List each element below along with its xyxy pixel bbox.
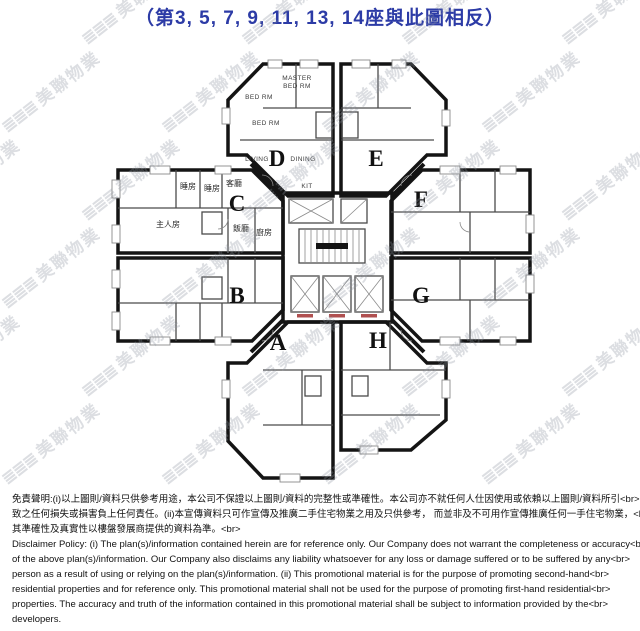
room-label: 客廳 bbox=[226, 178, 242, 188]
disclaimer-line: 其準確性及真實性以樓盤發展商提供的資料為準。<br> bbox=[12, 522, 632, 537]
room-label: 主人房 bbox=[156, 219, 180, 229]
unit-label-D: D bbox=[269, 146, 286, 171]
disclaimer-line: 致之任何損失或損害負上任何責任。(ii)本宣傳資料只可作宣傳及推廣二手住宅物業之… bbox=[12, 507, 632, 522]
room-label: DINING bbox=[290, 156, 315, 163]
disclaimer-line: of the above plan(s)/information. Our Co… bbox=[12, 552, 632, 567]
page: （第3, 5, 7, 9, 11, 13, 14座與此圖相反） bbox=[0, 0, 640, 631]
staircase bbox=[299, 229, 365, 263]
floor-plan: BED RMMASTERBED RMBED RMLIVINGDININGKIT睡… bbox=[0, 48, 640, 484]
disclaimer-line: properties. The accuracy and truth of th… bbox=[12, 597, 632, 612]
plan-title: （第3, 5, 7, 9, 11, 13, 14座與此圖相反） bbox=[0, 3, 640, 30]
disclaimer-line: 免責聲明:(i)以上圖則/資料只供參考用途，本公司不保證以上圖則/資料的完整性或… bbox=[12, 492, 632, 507]
lift-3 bbox=[355, 276, 383, 318]
room-label: 睡房 bbox=[204, 183, 220, 193]
unit-wings bbox=[118, 64, 530, 478]
unit-label-E: E bbox=[368, 146, 383, 171]
room-label: BED RM bbox=[283, 83, 311, 90]
unit-label-C: C bbox=[229, 191, 246, 216]
disclaimer: 免責聲明:(i)以上圖則/資料只供參考用途，本公司不保證以上圖則/資料的完整性或… bbox=[12, 492, 632, 627]
disclaimer-line: Disclaimer Policy: (i) The plan(s)/infor… bbox=[12, 537, 632, 552]
unit-label-F: F bbox=[414, 187, 428, 212]
disclaimer-line: residential properties and for reference… bbox=[12, 582, 632, 597]
room-label: BED RM bbox=[245, 94, 273, 101]
window-bays bbox=[112, 60, 534, 482]
room-label: 廚房 bbox=[256, 227, 272, 237]
lift-1 bbox=[291, 276, 319, 318]
room-label: 睡房 bbox=[180, 181, 196, 191]
room-label: BED RM bbox=[252, 120, 280, 127]
unit-label-G: G bbox=[412, 283, 430, 308]
unit-E-area bbox=[341, 64, 446, 196]
unit-D-area bbox=[228, 64, 333, 196]
disclaimer-line: developers. bbox=[12, 612, 632, 627]
unit-label-H: H bbox=[369, 328, 387, 353]
disclaimer-line: person as a result of using or relying o… bbox=[12, 567, 632, 582]
unit-label-B: B bbox=[229, 283, 244, 308]
lift-2 bbox=[323, 276, 351, 318]
room-label: MASTER bbox=[282, 75, 312, 82]
room-label: KIT bbox=[301, 183, 312, 190]
unit-label-A: A bbox=[270, 330, 287, 355]
core bbox=[283, 193, 392, 322]
room-label: 飯廳 bbox=[233, 223, 249, 233]
room-label: LIVING bbox=[245, 156, 269, 163]
